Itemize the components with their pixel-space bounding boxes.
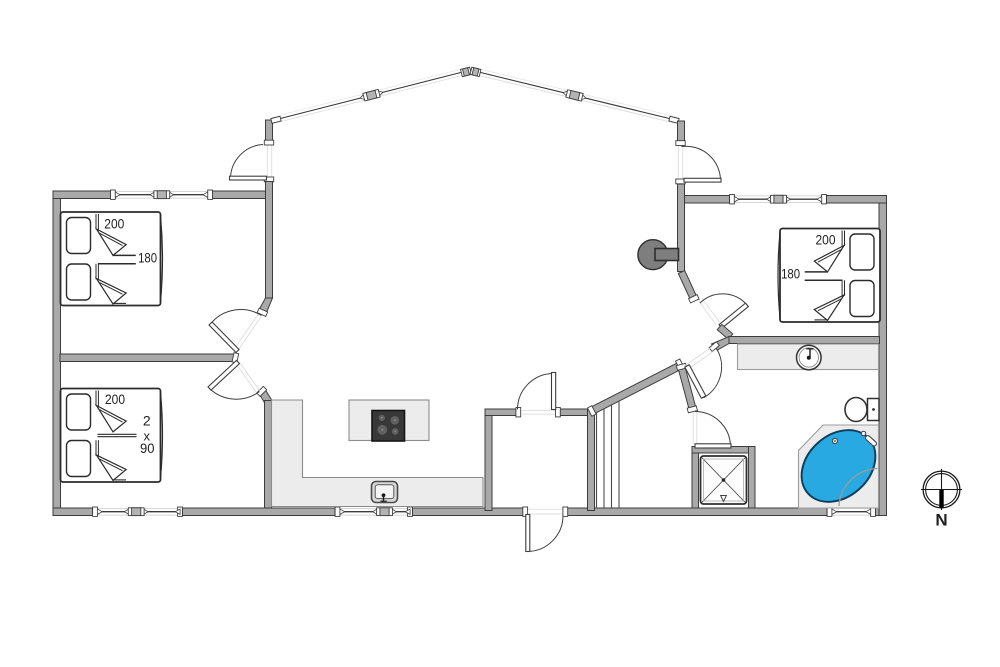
svg-text:180: 180 xyxy=(138,249,157,265)
svg-text:2: 2 xyxy=(143,413,151,429)
svg-text:200: 200 xyxy=(816,232,836,248)
svg-text:180: 180 xyxy=(781,266,800,282)
svg-text:N: N xyxy=(935,511,947,530)
svg-text:90: 90 xyxy=(140,440,155,456)
svg-text:200: 200 xyxy=(105,391,125,407)
svg-text:200: 200 xyxy=(104,216,124,232)
